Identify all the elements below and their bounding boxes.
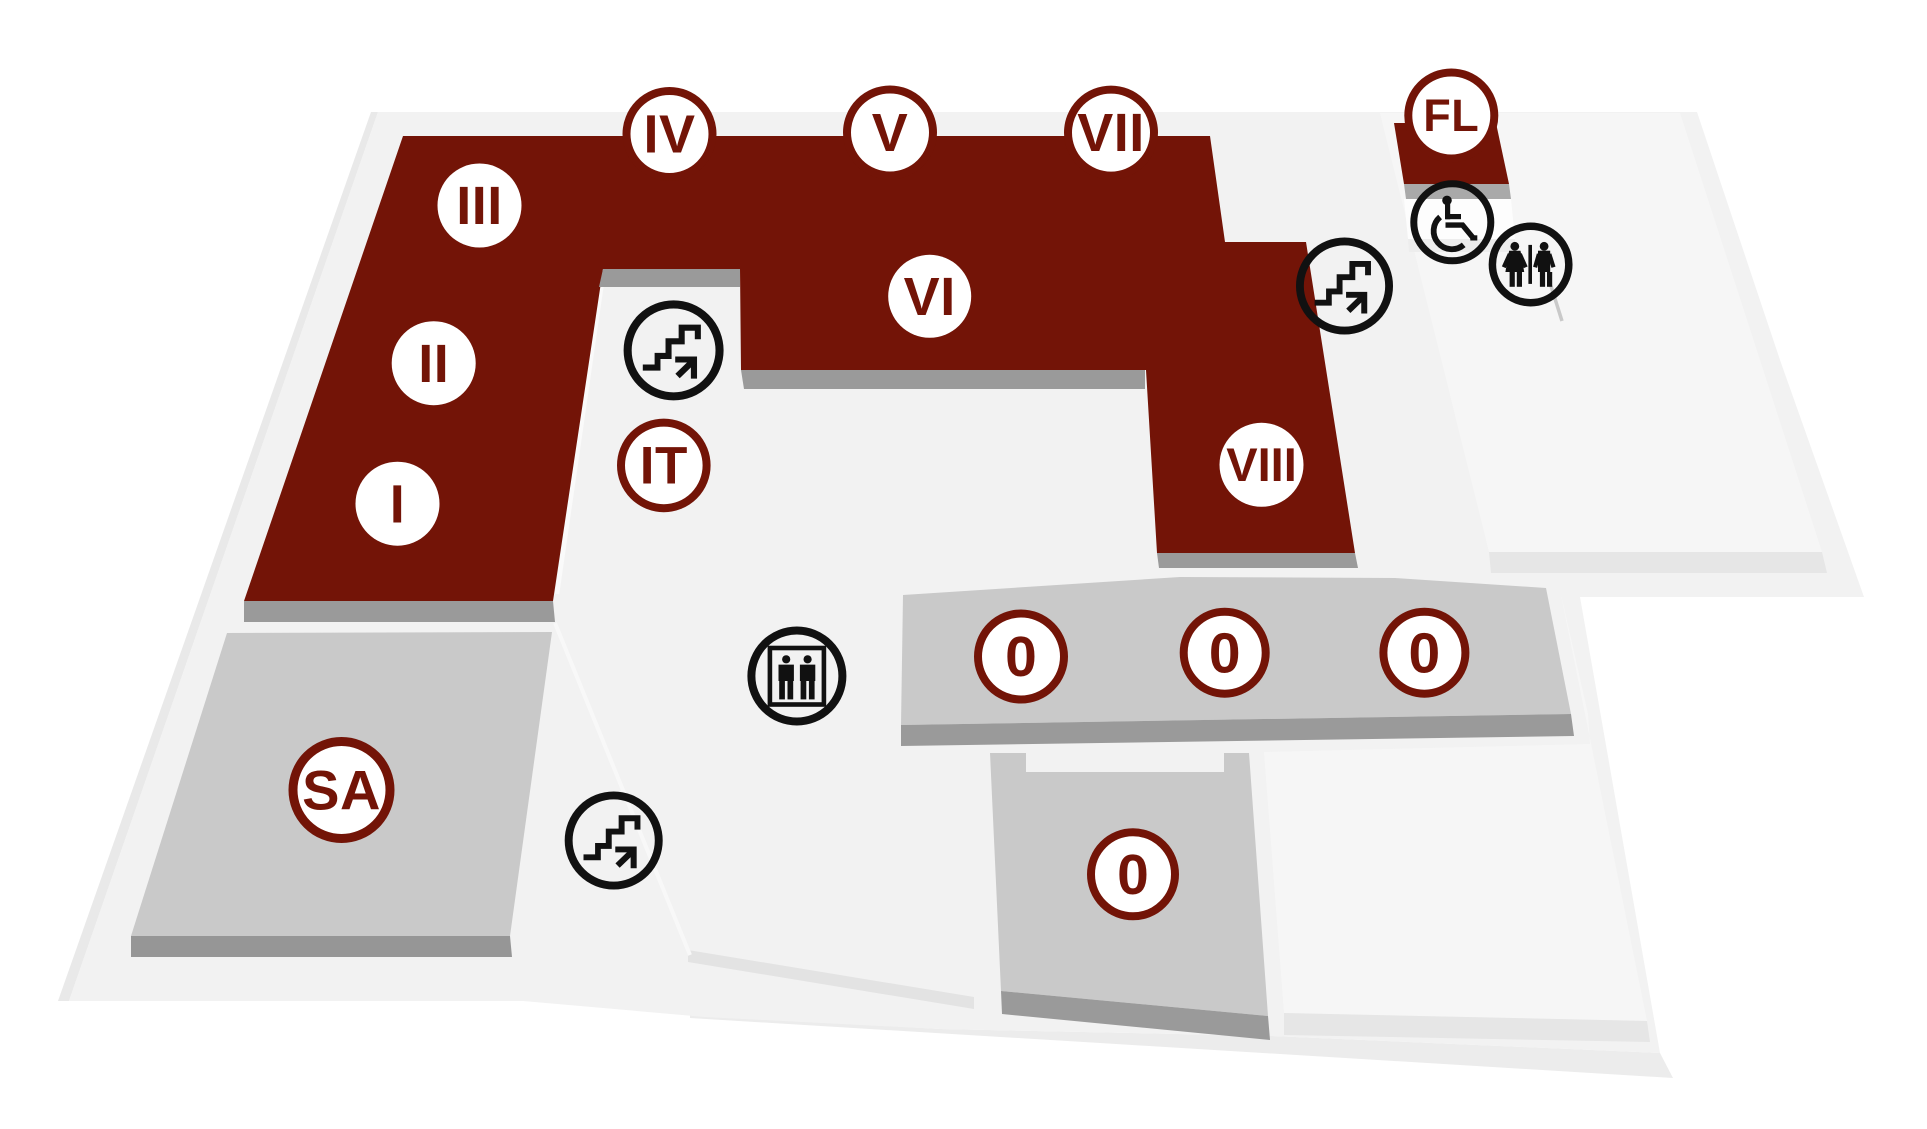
svg-text:V: V — [872, 103, 909, 163]
svg-text:0: 0 — [1409, 621, 1441, 685]
svg-text:VIII: VIII — [1226, 438, 1297, 491]
svg-text:0: 0 — [1005, 625, 1037, 689]
svg-text:II: II — [418, 334, 449, 394]
svg-text:VI: VI — [904, 267, 956, 327]
svg-text:IT: IT — [640, 437, 688, 496]
svg-text:0: 0 — [1117, 843, 1149, 907]
svg-text:IV: IV — [643, 105, 695, 165]
svg-text:0: 0 — [1209, 621, 1241, 685]
svg-text:FL: FL — [1423, 90, 1479, 141]
svg-text:VII: VII — [1077, 103, 1145, 163]
svg-text:III: III — [456, 176, 503, 236]
svg-text:SA: SA — [302, 758, 381, 821]
svg-text:I: I — [390, 474, 406, 534]
